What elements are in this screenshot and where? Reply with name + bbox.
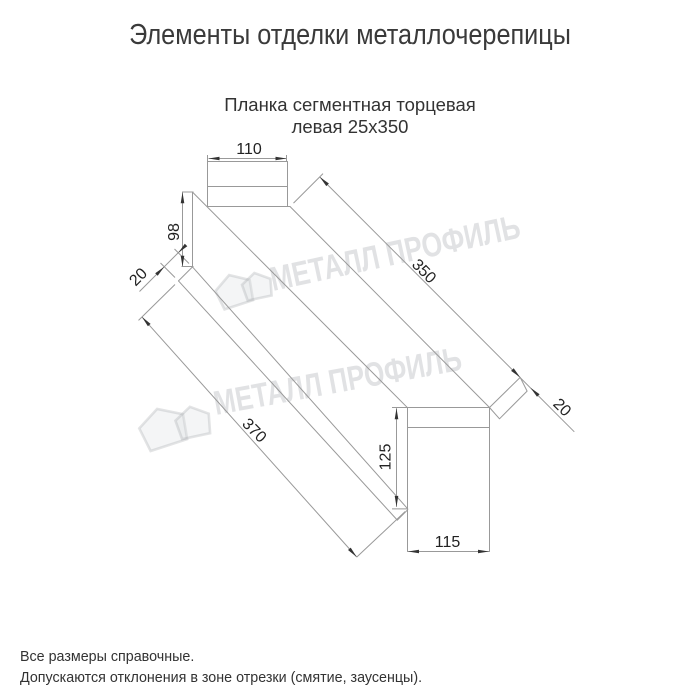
svg-text:98: 98 (166, 223, 183, 241)
svg-text:125: 125 (377, 444, 394, 471)
svg-text:МЕТАЛЛ ПРОФИЛЬ: МЕТАЛЛ ПРОФИЛЬ (211, 341, 465, 423)
svg-text:115: 115 (435, 534, 461, 551)
svg-text:20: 20 (549, 396, 574, 421)
svg-text:370: 370 (238, 415, 269, 446)
svg-text:110: 110 (236, 141, 262, 158)
svg-text:20: 20 (126, 265, 151, 290)
